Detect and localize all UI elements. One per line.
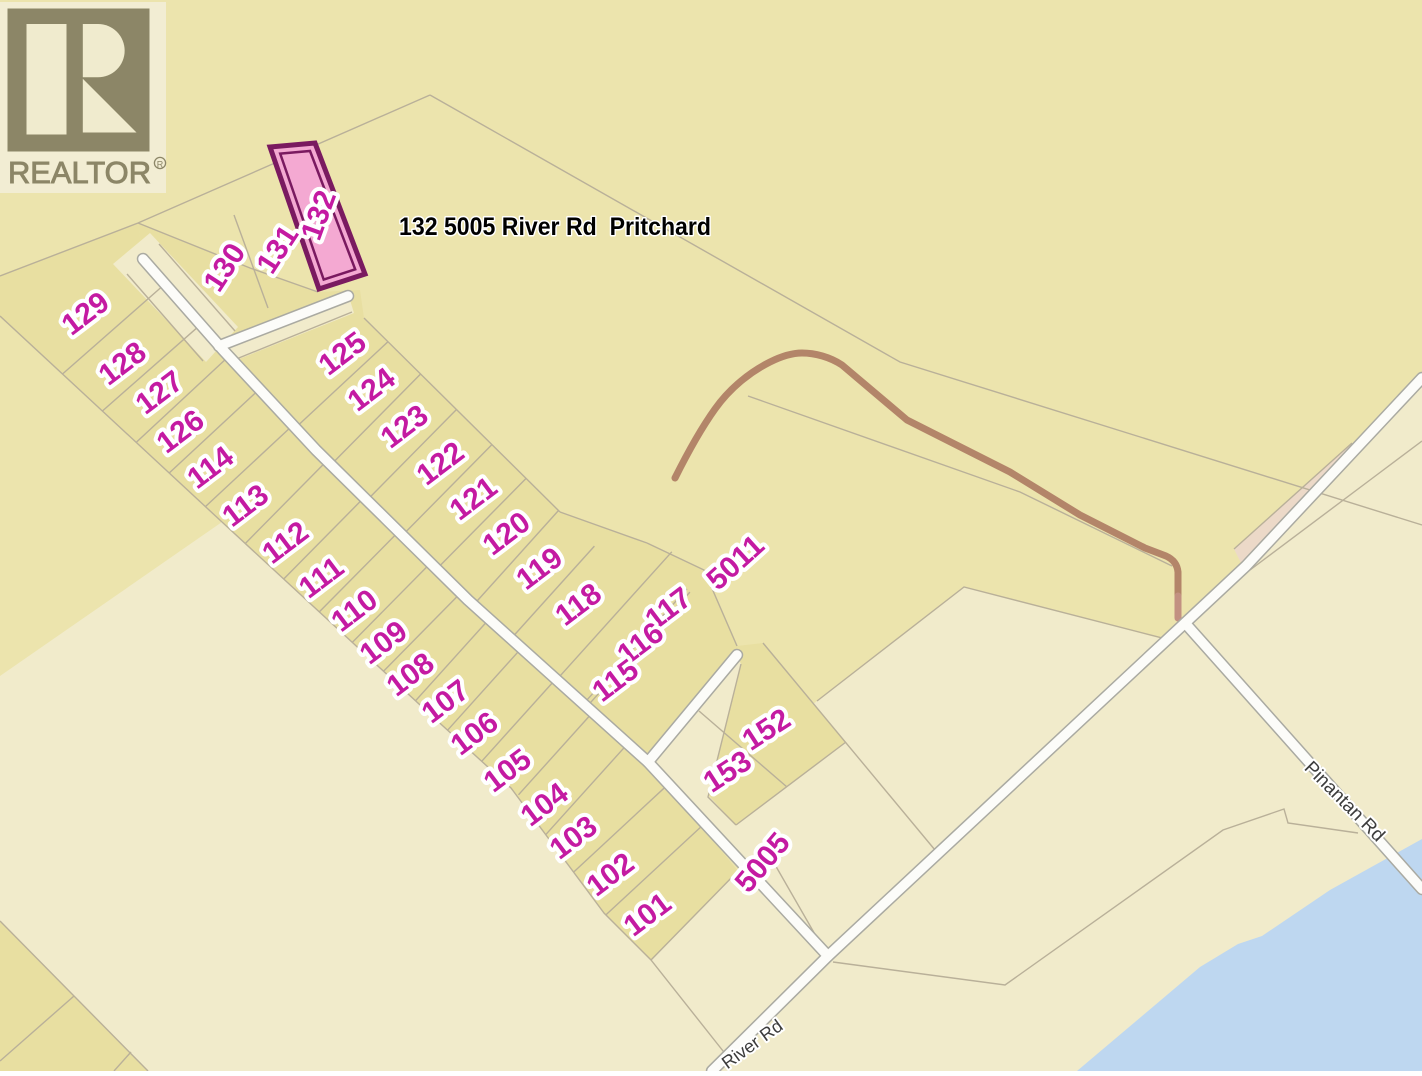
svg-text:REALTOR: REALTOR xyxy=(8,156,151,190)
svg-text:R: R xyxy=(157,160,164,170)
svg-text:132 5005 River Rd Pritchard: 132 5005 River Rd Pritchard xyxy=(399,213,711,241)
